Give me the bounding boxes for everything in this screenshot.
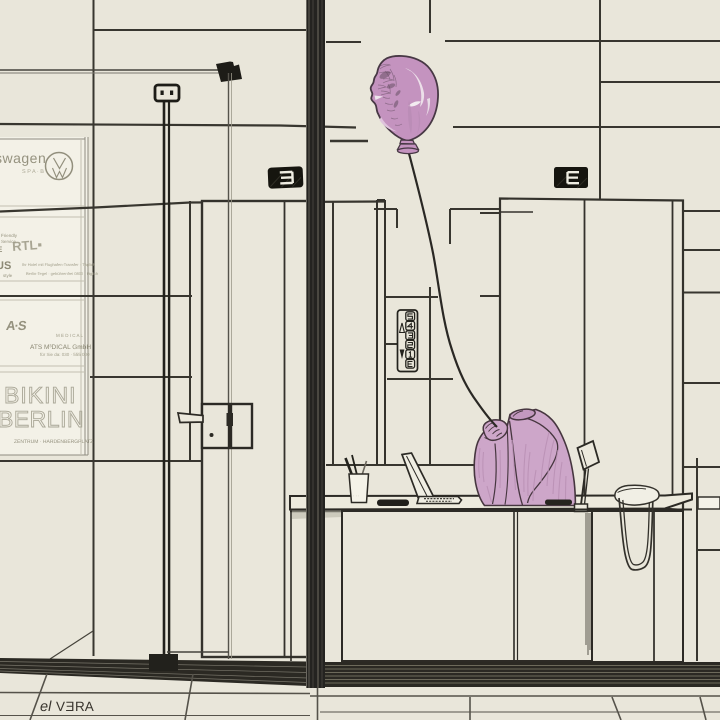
svg-text:ATS M³DICAL GmbH: ATS M³DICAL GmbH xyxy=(30,344,91,351)
svg-text:BERLIN: BERLIN xyxy=(0,406,84,432)
svg-text:S P A · B: S P A · B xyxy=(22,169,44,175)
svg-text:M E D I C A L: M E D I C A L xyxy=(56,333,84,338)
svg-text:Ihr Hotel mit Flughafen-Transf: Ihr Hotel mit Flughafen-Transfer · Tägli… xyxy=(22,262,95,267)
svg-text:Friendly: Friendly xyxy=(1,233,18,238)
svg-text:Berlin-Tegel · gebührenfrei 08: Berlin-Tegel · gebührenfrei 0800 · tägli… xyxy=(26,271,98,276)
svg-text:style: style xyxy=(3,273,13,278)
svg-text:el: el xyxy=(40,699,52,715)
svg-text:US: US xyxy=(0,260,11,272)
svg-text:E: E xyxy=(65,699,74,714)
svg-text:RA: RA xyxy=(75,699,94,714)
svg-text:· · ·: · · · xyxy=(353,493,359,498)
svg-text:A·S: A·S xyxy=(5,318,28,333)
svg-text:V: V xyxy=(56,699,65,714)
svg-text:BIKINI: BIKINI xyxy=(4,382,76,408)
svg-text:ZENTRUM · HARDENBERGPLATZ: ZENTRUM · HARDENBERGPLATZ xyxy=(14,439,93,445)
svg-text:für Sie da: 030 · 555 000: für Sie da: 030 · 555 000 xyxy=(40,352,90,357)
svg-text:swagen: swagen xyxy=(0,150,46,166)
svg-text:RTL▪: RTL▪ xyxy=(12,237,43,254)
